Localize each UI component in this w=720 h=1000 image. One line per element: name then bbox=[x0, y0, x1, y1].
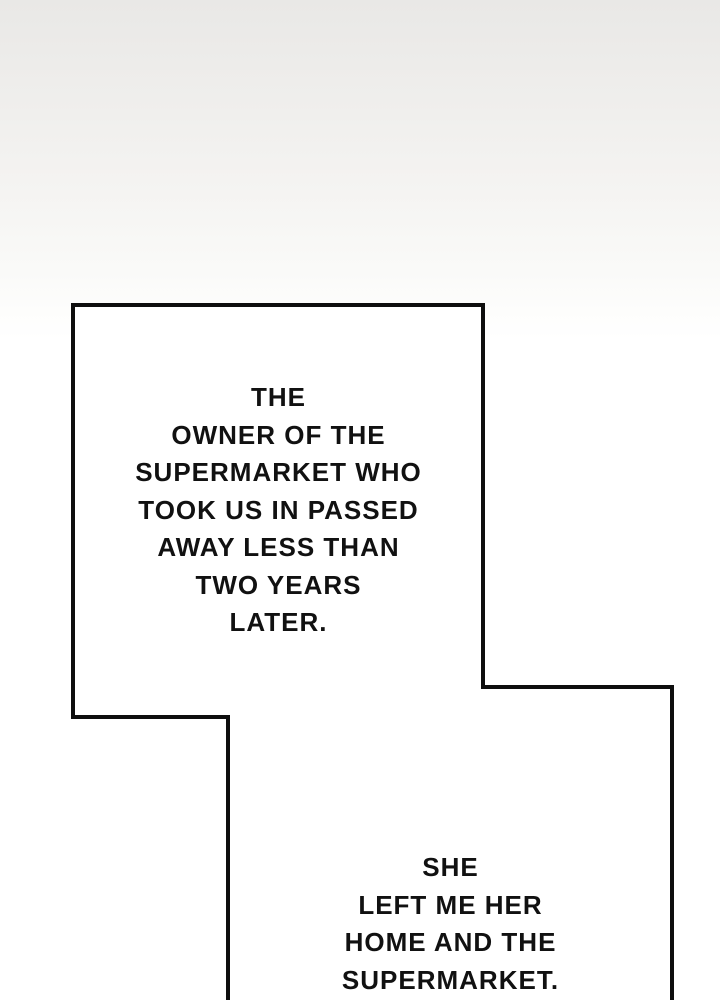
comic-page: { "colors": { "bg_top": "#e9e8e6", "bg_m… bbox=[0, 0, 720, 1000]
narration-box-lower: SHE LEFT ME HER HOME AND THE SUPERMARKET… bbox=[229, 849, 672, 999]
narration-box-upper: THE OWNER OF THE SUPERMARKET WHO TOOK US… bbox=[73, 379, 484, 642]
